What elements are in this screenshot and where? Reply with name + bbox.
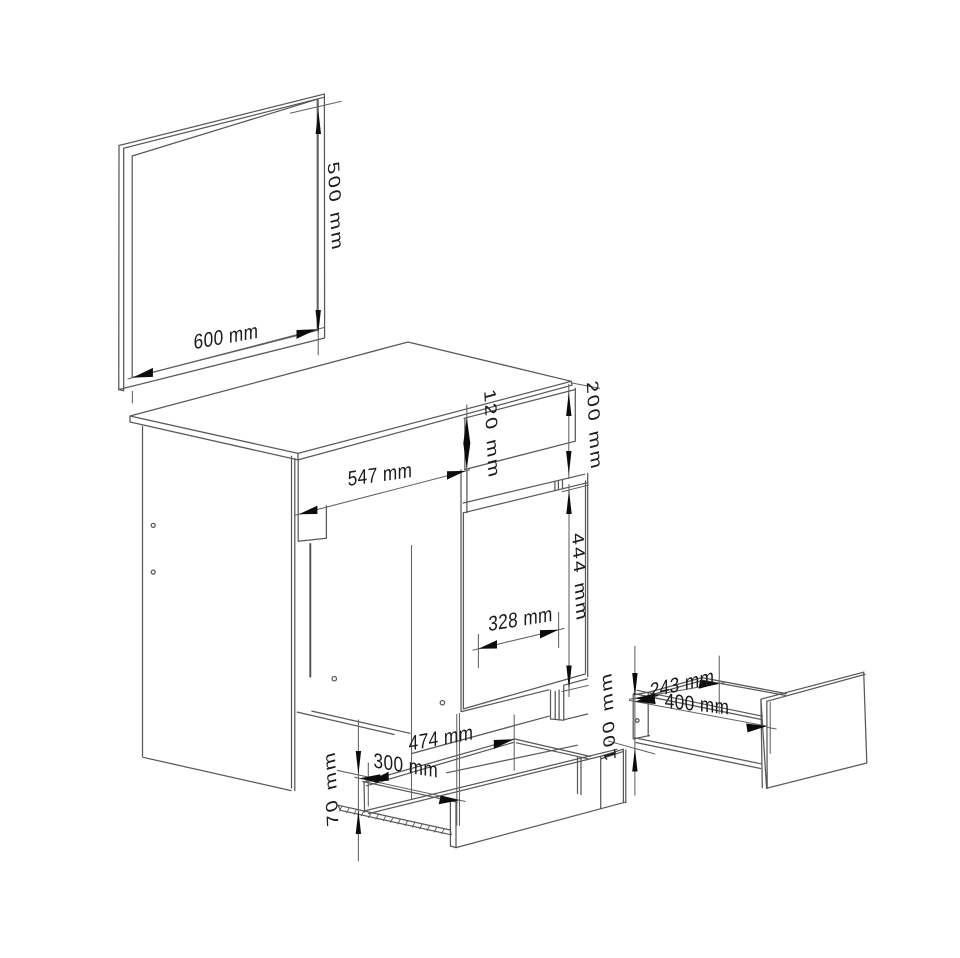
svg-text:70 mm: 70 mm (321, 748, 343, 828)
